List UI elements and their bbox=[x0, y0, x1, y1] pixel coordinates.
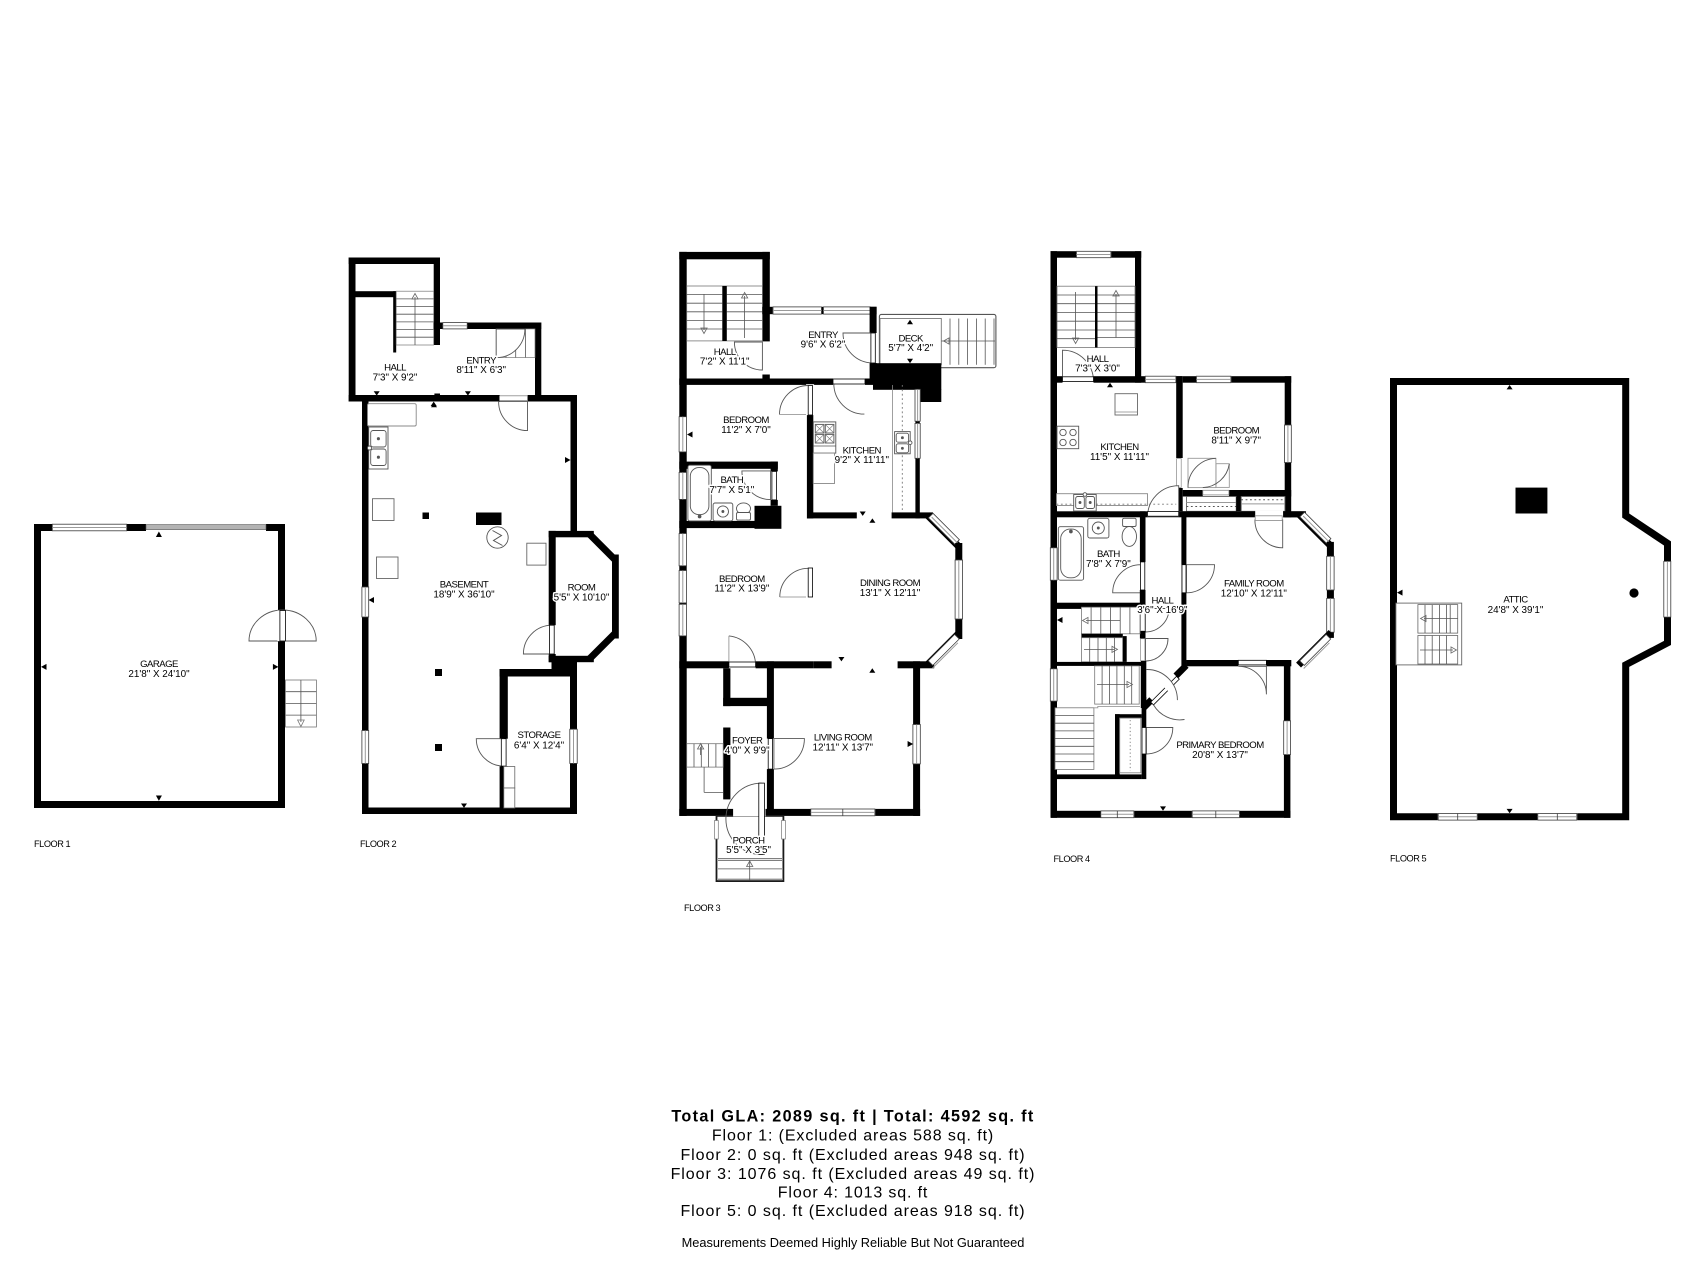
svg-text:FLOOR 5: FLOOR 5 bbox=[1390, 854, 1427, 864]
svg-text:12'10" X 12'11": 12'10" X 12'11" bbox=[1221, 588, 1288, 599]
svg-text:Total GLA: 2089 sq. ft | Total: Total GLA: 2089 sq. ft | Total: 4592 sq.… bbox=[671, 1108, 1034, 1126]
svg-text:7'3" X 9'2": 7'3" X 9'2" bbox=[373, 372, 418, 383]
svg-text:9'2" X 11'11": 9'2" X 11'11" bbox=[835, 455, 890, 466]
svg-text:5'7" X 4'2": 5'7" X 4'2" bbox=[888, 343, 933, 354]
svg-text:7'8" X 7'9": 7'8" X 7'9" bbox=[1086, 559, 1131, 570]
svg-text:Floor 2: 0 sq. ft (Excluded ar: Floor 2: 0 sq. ft (Excluded areas 948 sq… bbox=[680, 1147, 1025, 1164]
svg-text:FLOOR 4: FLOOR 4 bbox=[1054, 854, 1091, 864]
svg-text:11'2" X 7'0": 11'2" X 7'0" bbox=[721, 425, 771, 436]
svg-text:9'6" X 6'2": 9'6" X 6'2" bbox=[801, 340, 846, 351]
svg-text:Floor 5: 0 sq. ft (Excluded ar: Floor 5: 0 sq. ft (Excluded areas 918 sq… bbox=[680, 1203, 1025, 1220]
svg-text:24'8" X 39'1": 24'8" X 39'1" bbox=[1488, 605, 1544, 616]
svg-text:3'6" X 16'9": 3'6" X 16'9" bbox=[1137, 605, 1188, 616]
svg-text:Floor 4: 1013 sq. ft: Floor 4: 1013 sq. ft bbox=[778, 1185, 928, 1202]
svg-text:FLOOR 1: FLOOR 1 bbox=[34, 839, 71, 849]
svg-text:Floor 3: 1076 sq. ft (Excluded: Floor 3: 1076 sq. ft (Excluded areas 49 … bbox=[671, 1166, 1036, 1183]
svg-text:12'11" X 13'7": 12'11" X 13'7" bbox=[813, 743, 874, 754]
svg-text:5'5" X 3'5": 5'5" X 3'5" bbox=[726, 845, 771, 856]
svg-text:13'1" X 12'11": 13'1" X 12'11" bbox=[860, 588, 921, 599]
svg-text:Measurements Deemed Highly Rel: Measurements Deemed Highly Reliable But … bbox=[682, 1235, 1025, 1250]
svg-text:18'9" X 36'10": 18'9" X 36'10" bbox=[433, 590, 495, 601]
svg-text:FLOOR 2: FLOOR 2 bbox=[360, 839, 397, 849]
svg-text:7'3" X 3'0": 7'3" X 3'0" bbox=[1075, 364, 1120, 375]
svg-text:6'4" X 12'4": 6'4" X 12'4" bbox=[514, 740, 565, 751]
svg-text:7'2" X 11'1": 7'2" X 11'1" bbox=[700, 357, 750, 368]
svg-text:FLOOR 3: FLOOR 3 bbox=[684, 903, 721, 913]
svg-text:Floor 1: (Excluded areas 588 s: Floor 1: (Excluded areas 588 sq. ft) bbox=[712, 1128, 994, 1145]
svg-text:20'8" X 13'7": 20'8" X 13'7" bbox=[1192, 750, 1248, 761]
svg-text:5'5" X 10'10": 5'5" X 10'10" bbox=[554, 593, 610, 604]
svg-text:11'2" X 13'9": 11'2" X 13'9" bbox=[714, 584, 770, 595]
svg-text:4'0" X 9'9": 4'0" X 9'9" bbox=[725, 745, 770, 756]
svg-text:11'5" X 11'11": 11'5" X 11'11" bbox=[1090, 452, 1150, 463]
svg-text:21'8" X 24'10": 21'8" X 24'10" bbox=[128, 669, 190, 680]
svg-text:8'11" X 9'7": 8'11" X 9'7" bbox=[1211, 435, 1261, 446]
svg-text:7'7" X 5'1": 7'7" X 5'1" bbox=[709, 485, 754, 496]
svg-text:8'11" X 6'3": 8'11" X 6'3" bbox=[456, 365, 506, 376]
